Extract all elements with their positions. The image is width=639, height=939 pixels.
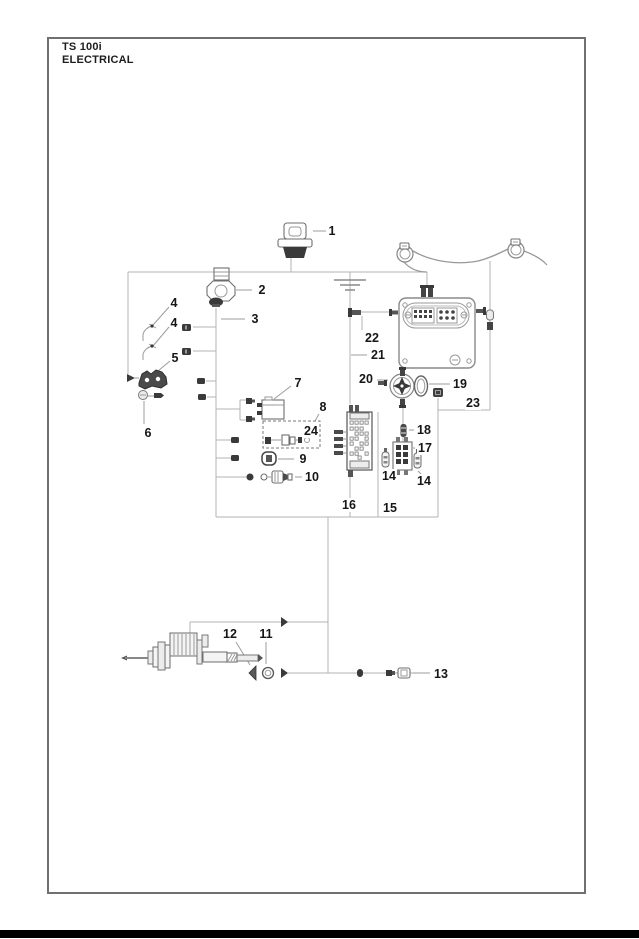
cap-assembly (207, 268, 235, 301)
parts-diagram-page: TS 100i ELECTRICAL (0, 0, 639, 939)
screw-washer (139, 391, 165, 400)
callout-8: 8 (319, 400, 328, 414)
callout-2: 2 (258, 283, 267, 297)
callout-13: 13 (433, 667, 449, 681)
callout-1: 1 (328, 224, 337, 238)
bushing-ring (263, 668, 274, 679)
footer-bar (0, 930, 639, 938)
callout-4: 4 (170, 296, 179, 310)
wire-clip (143, 344, 156, 360)
ecu-module (399, 285, 475, 368)
callout-19: 19 (452, 377, 468, 391)
wire-pin (281, 668, 288, 678)
callout-14: 14 (381, 469, 397, 483)
module-side-stubs (334, 430, 347, 455)
callout-5: 5 (171, 351, 180, 365)
callout-18: 18 (416, 423, 432, 437)
callout-23: 23 (465, 396, 481, 410)
wire-clip (143, 324, 156, 341)
callout-20: 20 (358, 372, 374, 386)
grommet-connector (262, 452, 276, 465)
plug-connector (247, 471, 293, 483)
control-module (334, 405, 372, 477)
cable-clamp-left (397, 243, 413, 262)
cable-clamp-right (508, 239, 524, 258)
callout-22: 22 (364, 331, 380, 345)
switch-bracket (127, 370, 167, 389)
ignition-module (278, 223, 312, 258)
callout-15: 15 (382, 501, 398, 515)
callout-21: 21 (370, 348, 386, 362)
callout-16: 16 (341, 498, 357, 512)
seal-ring (415, 376, 428, 396)
callout-10: 10 (304, 470, 320, 484)
callout-11: 11 (258, 627, 273, 641)
harness-cable (397, 239, 547, 272)
callout-4: 4 (170, 316, 179, 330)
starter-pulley (378, 367, 414, 408)
ground-nut (433, 388, 443, 397)
callout-17: 17 (417, 441, 433, 455)
callout-12: 12 (222, 627, 238, 641)
callout-14: 14 (416, 474, 432, 488)
callout-24: 24 (303, 424, 319, 438)
mounting-screw-right (476, 307, 494, 330)
terminal (382, 448, 389, 467)
callout-3: 3 (251, 312, 260, 326)
callout-7: 7 (294, 376, 303, 390)
drive-cone (249, 666, 256, 680)
wire-pin (281, 617, 288, 627)
pin-terminal (400, 424, 407, 437)
harness-end-cap (209, 298, 223, 308)
callout-9: 9 (299, 452, 308, 466)
callout-6: 6 (144, 426, 153, 440)
relay-module (246, 397, 284, 422)
